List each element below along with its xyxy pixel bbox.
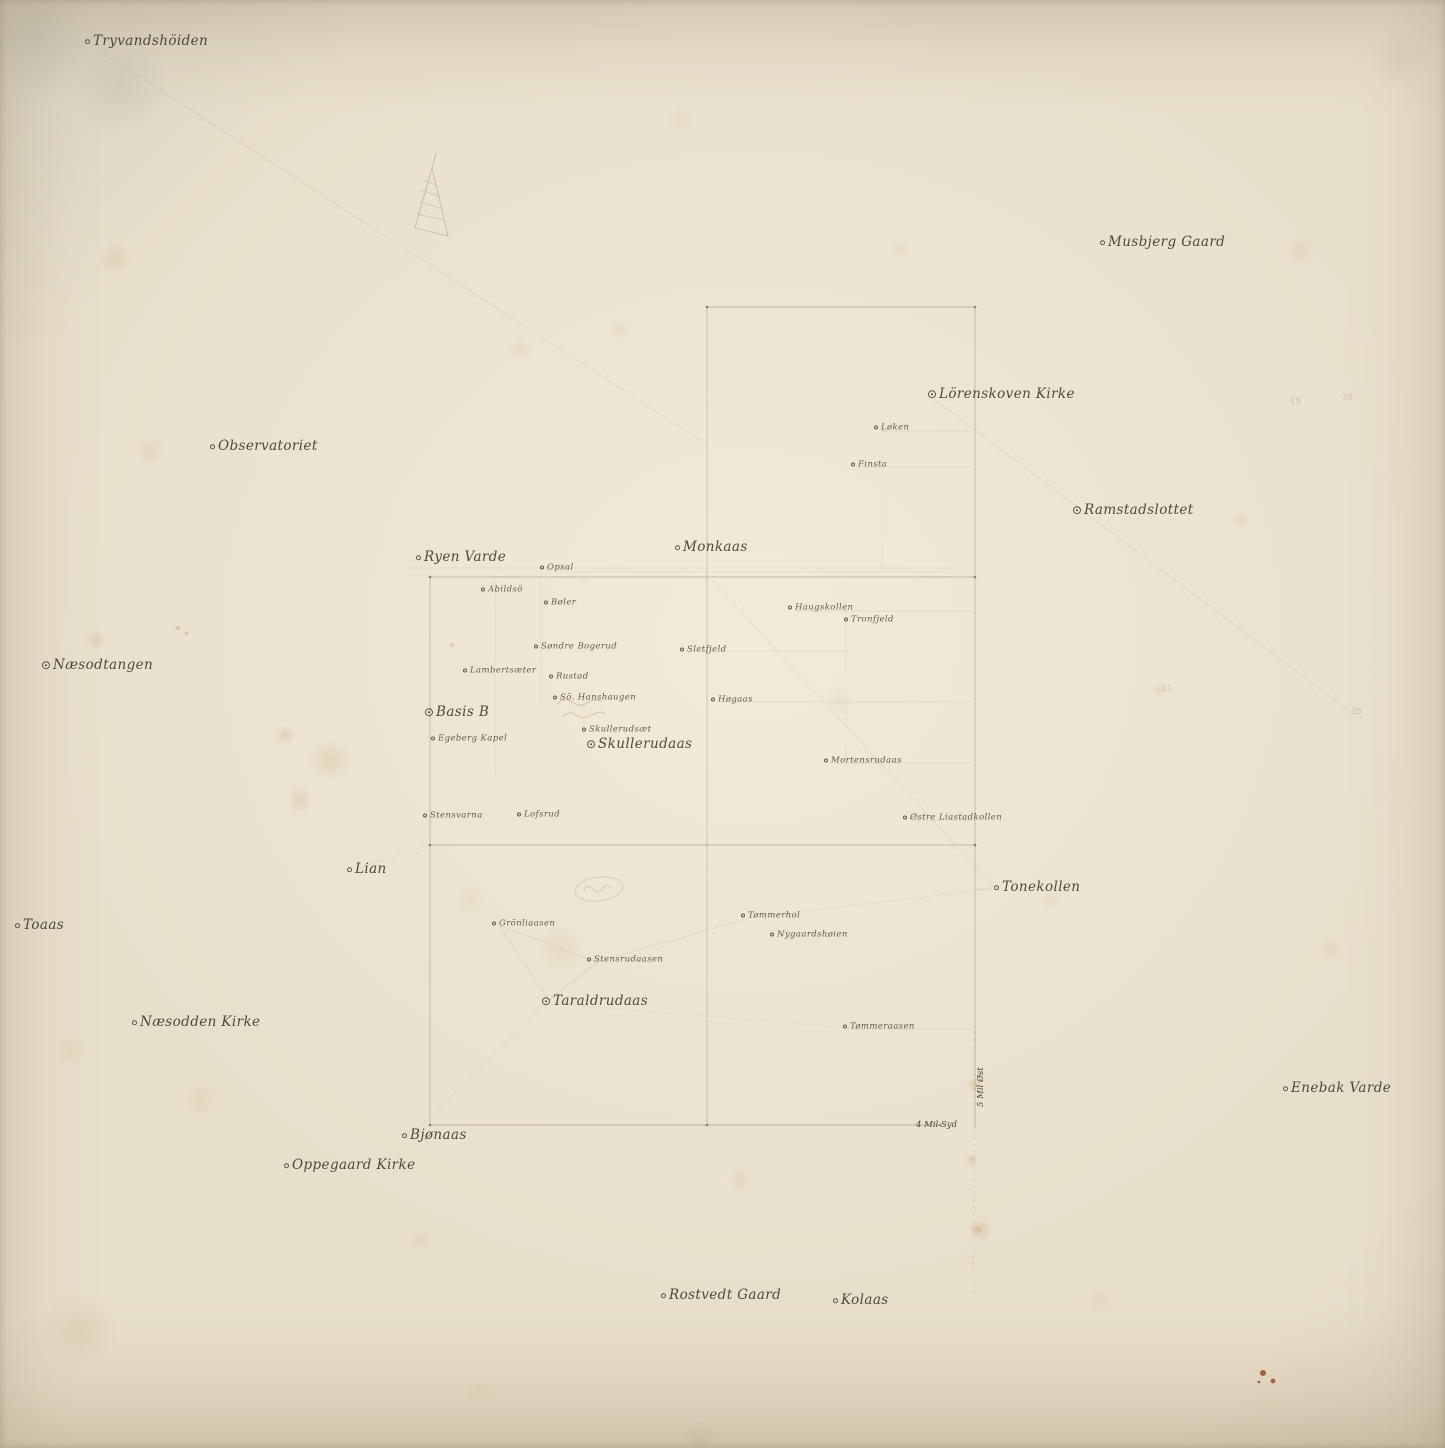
pencil-triangle-sketch [415,153,448,236]
station-marker-icon [463,669,467,673]
station-taraldrudaas: Taraldrudaas [542,993,648,1009]
station-label: Tømmerhol [748,911,800,921]
station-marker-icon [843,1025,847,1029]
station-toaas: Toaas [15,917,64,933]
station-label: Taraldrudaas [553,993,648,1009]
station-basis-b: Basis B [425,704,489,720]
station-abildso: Abildsö [481,585,523,595]
station-label: Bøler [551,598,576,608]
station-observatoriet: Observatoriet [210,438,318,454]
station-label: Oppegaard Kirke [292,1157,416,1173]
station-marker-icon [492,922,496,926]
station-marker-icon [903,816,907,820]
station-marker-icon [675,545,680,550]
station-label: Musbjerg Gaard [1108,234,1225,250]
station-label: Lambertsæter [470,666,536,676]
station-lorenskoven-kirke: Lörenskoven Kirke [928,386,1075,402]
station-label: Grönliaasen [499,919,555,929]
station-marker-icon [741,914,745,918]
station-loken: Løken [874,423,909,433]
station-label: Toaas [23,917,64,933]
station-lambertsaeter: Lambertsæter [463,666,536,676]
station-tommerhol: Tømmerhol [741,911,800,921]
station-label: Stensvarna [430,811,483,821]
station-label: Skullerudaas [598,736,692,752]
station-marker-icon [770,933,774,937]
station-label: Østre Liastadkollen [910,813,1002,823]
station-marker-icon [85,39,90,44]
station-skullerudsaet: Skullerudsæt [582,725,651,735]
station-marker-icon [874,426,878,430]
station-rustad: Rustad [549,672,589,682]
station-tronfjeld: Tronfjeld [844,615,894,625]
station-marker-icon [582,728,586,732]
sight-line [712,580,993,886]
station-marker-icon [833,1298,838,1303]
station-marker-icon [544,601,548,605]
annotation-mil-syd: 4 Mil Syd [916,1120,957,1130]
station-enebak-varde: Enebak Varde [1283,1080,1391,1096]
station-label: Ramstadslottet [1084,502,1194,518]
station-marker-icon [542,997,550,1005]
station-nygaardshoien: Nygaardshøien [770,930,848,940]
station-marker-icon [788,606,792,610]
station-label: Finsta [858,460,887,470]
station-label: Tonekollen [1002,879,1080,895]
pencil-circled-note [574,874,625,904]
station-marker-icon [844,618,848,622]
station-marker-icon [1100,240,1105,245]
station-marker-icon [824,759,828,763]
station-marker-icon [851,463,855,467]
station-ostre-liastadkollen: Østre Liastadkollen [903,813,1002,823]
station-label: Næsodtangen [53,657,153,673]
station-rostvedt-gaard: Rostvedt Gaard [661,1287,781,1303]
station-boler: Bøler [544,598,576,608]
station-sondre-bogerud: Søndre Bogerud [534,642,617,652]
station-egeberg-kapel: Egeberg Kapel [431,734,507,744]
station-marker-icon [680,648,684,652]
station-marker-icon [540,566,544,570]
station-kolaas: Kolaas [833,1292,889,1308]
sight-line [95,48,705,443]
sight-line [413,1005,545,1133]
station-marker-icon [210,444,215,449]
station-mortensrudaas: Mortensrudaas [824,756,902,766]
station-marker-icon [994,885,999,890]
station-marker-icon [587,958,591,962]
sight-lines [95,48,1352,1133]
station-label: Tømmeraasen [850,1022,915,1032]
station-marker-icon [587,740,595,748]
station-sletfjeld: Sletfjeld [680,645,727,655]
station-label: Sletfjeld [687,645,727,655]
station-marker-icon [553,696,557,700]
station-so-hanshaugen: Sö. Hanshaugen [553,693,636,703]
map-sheet: TryvandshöidenMusbjerg GaardLörenskoven … [0,0,1445,1448]
station-opsal: Opsal [540,563,574,573]
station-label: Lörenskoven Kirke [939,386,1075,402]
station-marker-icon [15,923,20,928]
annotation-mil-ost: 5 Mil Øst [976,1067,986,1107]
station-label: Tryvandshöiden [93,33,208,49]
station-marker-icon [549,675,553,679]
station-hogaas: Høgaas [711,695,753,705]
station-finsta: Finsta [851,460,887,470]
wax-dots [1258,1370,1276,1383]
station-marker-icon [347,867,352,872]
station-tommeraasen: Tømmeraasen [843,1022,915,1032]
station-marker-icon [431,737,435,741]
station-marker-icon [42,661,50,669]
station-label: Rostvedt Gaard [669,1287,781,1303]
station-ramstadslottet: Ramstadslottet [1073,502,1194,518]
station-marker-icon [711,698,715,702]
sight-line [500,927,549,1000]
station-label: Egeberg Kapel [438,734,507,744]
station-marker-icon [517,813,521,817]
station-label: Rustad [556,672,589,682]
station-label: Næsodden Kirke [140,1014,260,1030]
survey-lines-layer [0,0,1445,1448]
station-stensrudaasen: Stensrudaasen [587,955,663,965]
station-gronliaasen: Grönliaasen [492,919,555,929]
station-marker-icon [132,1020,137,1025]
station-marker-icon [402,1133,407,1138]
station-lofsrud: Lofsrud [517,810,560,820]
station-marker-icon [928,390,936,398]
station-label: Observatoriet [218,438,318,454]
station-label: Opsal [547,563,574,573]
station-skullerudaas: Skullerudaas [587,736,692,752]
station-label: Haugskollen [795,603,853,613]
station-marker-icon [534,645,538,649]
station-label: Enebak Varde [1291,1080,1391,1096]
station-label: Monkaas [683,539,748,555]
station-monkaas: Monkaas [675,539,748,555]
station-tonekollen: Tonekollen [994,879,1080,895]
station-label: Høgaas [718,695,753,705]
annotation-pencil-39: 39 [1342,393,1353,403]
station-marker-icon [416,555,421,560]
station-oppegaard-kirke: Oppegaard Kirke [284,1157,416,1173]
station-label: Ryen Varde [424,549,506,565]
annotation-pencil-35: 35 [1351,707,1362,717]
station-tryvandshoiden: Tryvandshöiden [85,33,208,49]
station-marker-icon [481,588,485,592]
station-label: Skullerudsæt [589,725,651,735]
station-label: Nygaardshøien [777,930,848,940]
station-bjonaas: Bjønaas [402,1127,467,1143]
station-label: Mortensrudaas [831,756,902,766]
station-label: Lian [355,861,387,877]
station-marker-icon [423,814,427,818]
station-label: Abildsö [488,585,523,595]
station-label: Søndre Bogerud [541,642,617,652]
station-haugskollen: Haugskollen [788,603,853,613]
station-marker-icon [284,1163,289,1168]
station-stensvarna: Stensvarna [423,811,483,821]
station-marker-icon [1283,1086,1288,1091]
station-label: Løken [881,423,909,433]
station-naesodtangen: Næsodtangen [42,657,153,673]
sight-line [500,926,598,962]
station-label: Kolaas [841,1292,889,1308]
station-naesodden-kirke: Næsodden Kirke [132,1014,260,1030]
station-musbjerg-gaard: Musbjerg Gaard [1100,234,1225,250]
station-marker-icon [425,708,433,716]
sight-line [935,400,1352,713]
station-lian: Lian [347,861,387,877]
station-label: Lofsrud [524,810,560,820]
station-label: Sö. Hanshaugen [560,693,636,703]
station-marker-icon [661,1293,666,1298]
annotation-pencil-15: 15 [1290,397,1301,407]
station-ryen-varde: Ryen Varde [416,549,506,565]
station-label: Basis B [436,704,489,720]
station-label: Bjønaas [410,1127,467,1143]
station-marker-icon [1073,506,1081,514]
annotation-pencil-11: 11 [1161,684,1172,694]
station-label: Tronfjeld [851,615,894,625]
station-label: Stensrudaasen [594,955,663,965]
